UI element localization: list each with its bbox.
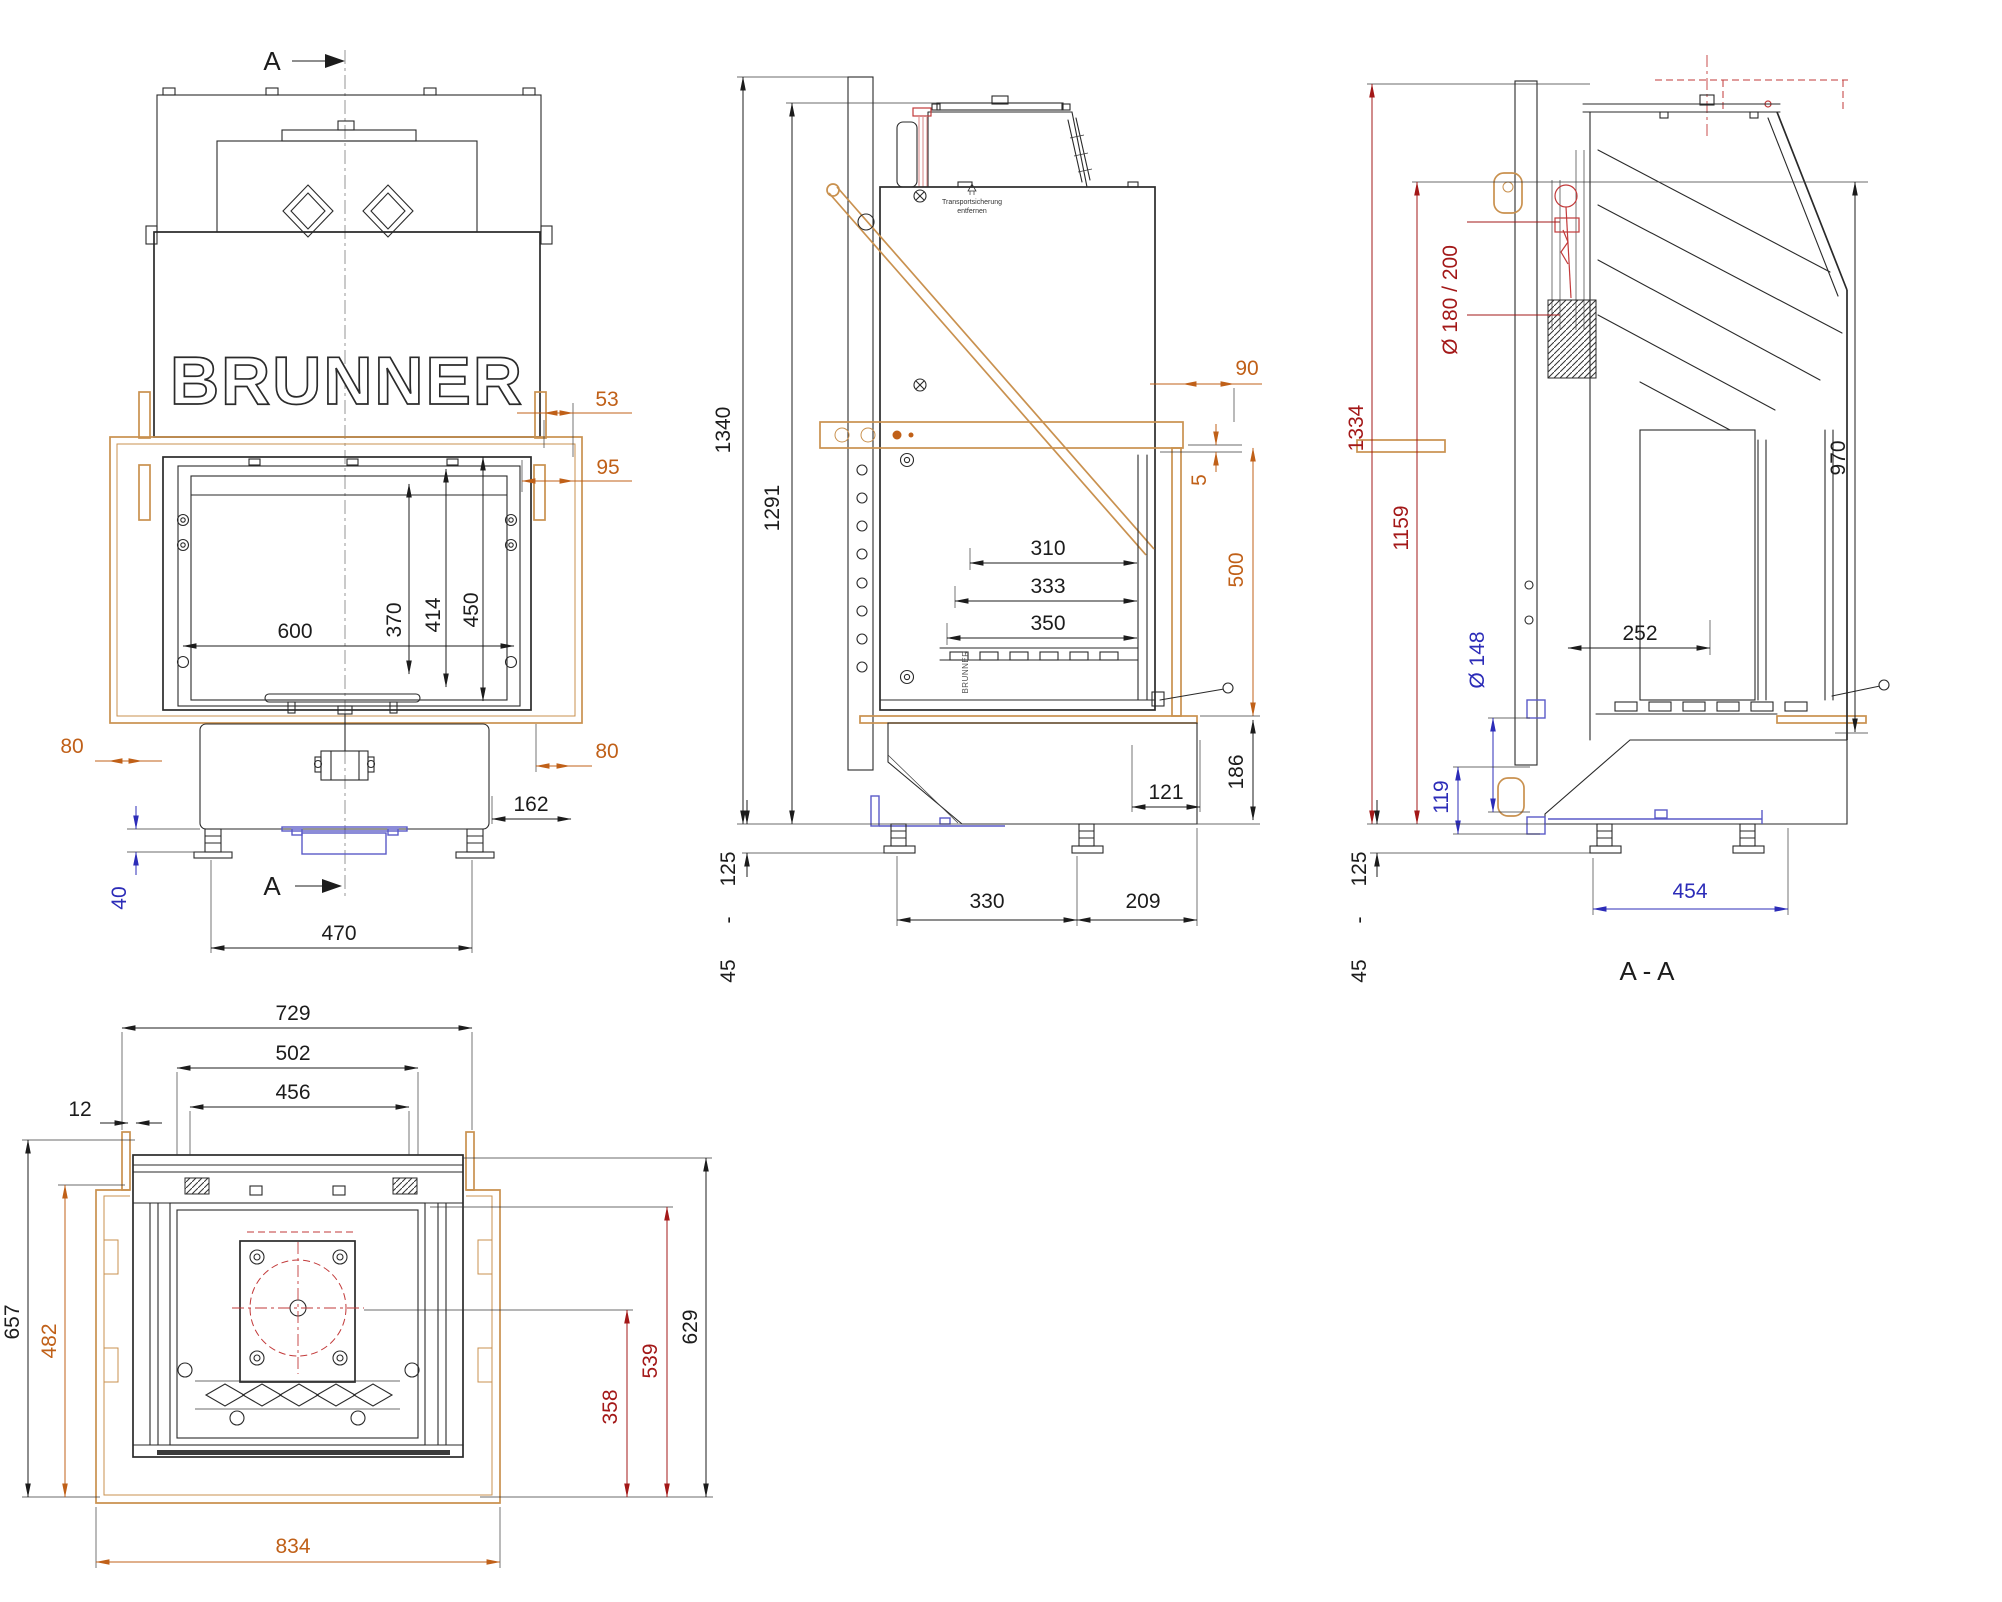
- dim-flue-diameter: Ø 180 / 200: [1439, 245, 1462, 355]
- dim-310: 310: [1030, 537, 1065, 560]
- dim-162: 162: [513, 793, 548, 816]
- dim-500: 500: [1225, 552, 1248, 587]
- dim-45: 45: [717, 959, 740, 982]
- section-view-title: A - A: [1620, 956, 1676, 986]
- section-marker-label: A: [263, 871, 281, 901]
- dim-539: 539: [639, 1343, 662, 1378]
- dim-629: 629: [679, 1309, 702, 1344]
- dim-53: 53: [595, 388, 618, 411]
- dim-350: 350: [1030, 612, 1065, 635]
- wall-rail-top: [820, 422, 1183, 448]
- door-hinges: [178, 515, 517, 668]
- flue-hoist-red: [1555, 185, 1579, 298]
- dim-482: 482: [38, 1323, 61, 1358]
- side-structure: Transportsicherung entfernen: [737, 77, 1233, 853]
- section-cut-marker-top: A: [263, 46, 345, 76]
- transport-brace: [827, 184, 1154, 555]
- dim-12: 12: [68, 1098, 91, 1121]
- dim-90: 90: [1235, 357, 1258, 380]
- dim-186: 186: [1225, 754, 1248, 789]
- brunner-logo: BRUNNER: [170, 343, 524, 419]
- section-base: [1545, 740, 1847, 853]
- dim-125: 125: [717, 851, 740, 886]
- dim-450: 450: [460, 592, 483, 627]
- dim-834: 834: [275, 1535, 310, 1558]
- dim-80-right: 80: [595, 740, 618, 763]
- dim-1340: 1340: [712, 407, 735, 454]
- plan-dimensions: 729 502 456 12 657 482 629 539 358 834: [1, 1002, 713, 1568]
- flue-projection-red: [1655, 55, 1848, 140]
- dim-370: 370: [383, 602, 406, 637]
- dim-454: 454: [1672, 880, 1707, 903]
- crossed-circle-icon: [914, 190, 926, 391]
- side-dimensions: 1340 1291 90 5 500 186 310 333 350 121: [712, 77, 1262, 983]
- dim-252: 252: [1622, 622, 1657, 645]
- dim-121: 121: [1148, 781, 1183, 804]
- technical-drawing: A BRUNNER: [0, 0, 2002, 1602]
- dim-air-diameter: Ø 148: [1466, 631, 1489, 688]
- convection-plate: [232, 1232, 364, 1382]
- section-structure: [1357, 55, 1889, 853]
- dim-45: 45: [1348, 959, 1371, 982]
- transport-note-line1: Transportsicherung: [942, 199, 1002, 206]
- transport-note-line2: entfernen: [957, 208, 987, 215]
- baffle-plates: [1598, 150, 1842, 430]
- dim-40: 40: [108, 886, 131, 909]
- dim-95: 95: [596, 456, 619, 479]
- dim-1159: 1159: [1390, 505, 1413, 550]
- section-view: 1334 1159 Ø 180 / 200 970 252 Ø 148 119 …: [1345, 55, 1889, 986]
- dim-729: 729: [275, 1002, 310, 1025]
- section-dimensions: 1334 1159 Ø 180 / 200 970 252 Ø 148 119 …: [1345, 84, 1868, 986]
- firebox-brand-label: BRUNNER: [961, 650, 970, 693]
- front-frame-edge: [1172, 448, 1181, 716]
- dim-5: 5: [1188, 474, 1211, 486]
- dim-range-dash: -: [717, 917, 740, 924]
- dim-358: 358: [599, 1389, 622, 1424]
- section-marker-label: A: [263, 46, 281, 76]
- drawing-sheet: A BRUNNER: [0, 0, 2002, 1602]
- dim-333: 333: [1030, 575, 1065, 598]
- front-upper-assembly: [146, 88, 552, 244]
- front-mounting-frame: [110, 437, 582, 723]
- plan-structure: [96, 1132, 500, 1503]
- dim-330: 330: [969, 890, 1004, 913]
- grate-diamonds: [178, 1363, 419, 1425]
- dim-456: 456: [275, 1081, 310, 1104]
- wall-rail-bottom: [860, 716, 1197, 723]
- dim-125: 125: [1348, 851, 1371, 886]
- dim-1291: 1291: [761, 485, 784, 532]
- front-door: [163, 457, 531, 713]
- panel-holes: [857, 454, 914, 684]
- dim-range-dash: -: [1348, 917, 1371, 924]
- door-handle-bar: [265, 694, 420, 702]
- dim-502: 502: [275, 1042, 310, 1065]
- air-inlet-blue: [1525, 581, 1545, 834]
- plan-view: 729 502 456 12 657 482 629 539 358 834: [1, 1002, 713, 1568]
- front-dimensions: 53 95 370 414 450 600 80 80 162 40 470: [60, 388, 632, 953]
- dim-970: 970: [1827, 440, 1850, 475]
- dim-80-left: 80: [60, 735, 83, 758]
- section-cut-marker-bottom: A: [263, 871, 342, 901]
- dim-600: 600: [277, 620, 312, 643]
- dim-209: 209: [1125, 890, 1160, 913]
- door-edge-band: [157, 1450, 450, 1455]
- side-view: Transportsicherung entfernen: [712, 77, 1262, 983]
- front-pedestal: [200, 706, 489, 854]
- front-view: A BRUNNER: [60, 46, 632, 953]
- dim-119: 119: [1430, 780, 1453, 813]
- dim-470: 470: [321, 922, 356, 945]
- front-body: BRUNNER: [139, 232, 546, 520]
- dim-414: 414: [422, 597, 445, 632]
- dim-1334: 1334: [1345, 404, 1368, 451]
- transport-lock-note: Transportsicherung entfernen: [942, 184, 1002, 215]
- dim-657: 657: [1, 1304, 24, 1339]
